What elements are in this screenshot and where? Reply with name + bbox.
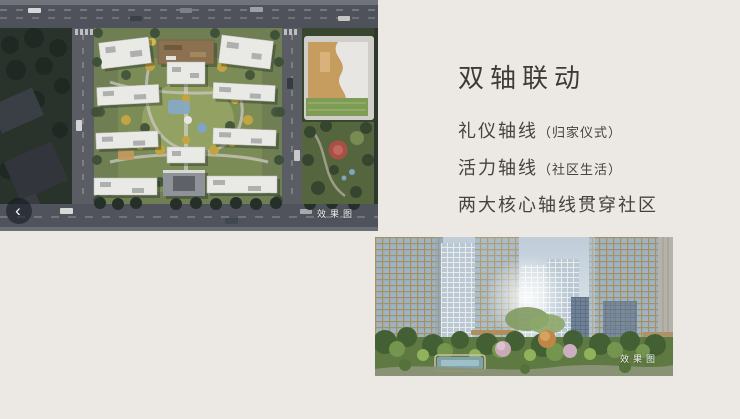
feature-line: 活力轴线（社区生活） (458, 154, 728, 180)
aerial-site-plan-image[interactable]: 效果图 ‹ (0, 0, 378, 231)
feature-main-text: 礼仪轴线 (458, 121, 538, 141)
feature-note-text: （社区生活） (538, 162, 622, 177)
feature-line: 礼仪轴线（归家仪式） (458, 117, 728, 143)
feature-list: 礼仪轴线（归家仪式） 活力轴线（社区生活） 两大核心轴线贯穿社区 (458, 117, 728, 228)
slide: 效果图 ‹ 双轴联动 礼仪轴线（归家仪式） 活力轴线（社区生活） 两大核心轴线贯… (0, 0, 740, 419)
feature-line: 两大核心轴线贯穿社区 (458, 191, 728, 217)
street-level-rendering-image[interactable]: 效果图 (375, 237, 673, 376)
feature-main-text: 活力轴线 (458, 158, 538, 178)
page-title: 双轴联动 (458, 58, 586, 95)
street-illustration (375, 237, 673, 376)
chevron-left-icon: ‹ (15, 202, 21, 219)
feature-note-text: （归家仪式） (538, 125, 622, 140)
feature-main-text: 两大核心轴线贯穿社区 (458, 195, 658, 215)
carousel-prev-button[interactable]: ‹ (6, 198, 32, 224)
aerial-illustration (0, 0, 378, 231)
